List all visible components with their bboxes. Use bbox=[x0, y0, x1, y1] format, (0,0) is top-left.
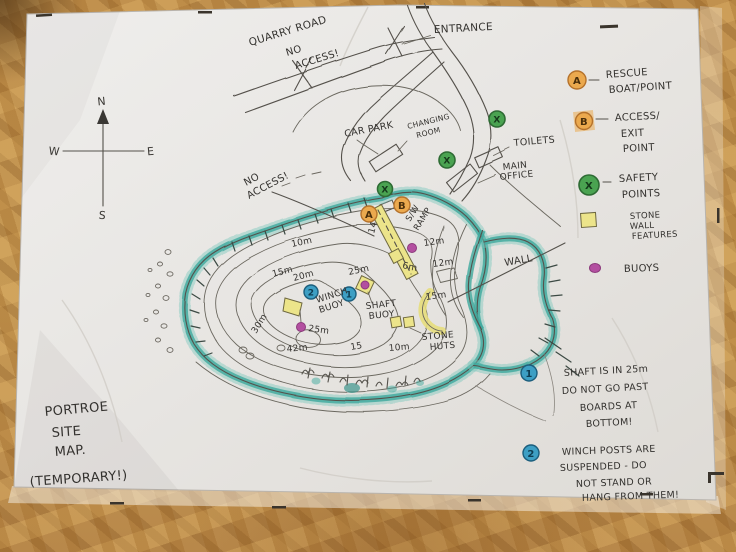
legend-safety-letter: X bbox=[585, 181, 593, 192]
legend-buoy-symbol bbox=[590, 264, 601, 273]
legend-access-line3: POINT bbox=[623, 142, 656, 155]
legend-access-letter: B bbox=[580, 117, 588, 128]
depth-10m-south: 10m bbox=[388, 342, 410, 354]
legend-rescue-letter: A bbox=[573, 76, 581, 87]
buoy-winch bbox=[297, 323, 306, 332]
buoy-ramp bbox=[408, 244, 417, 253]
safety-point-ramp-label: X bbox=[381, 186, 388, 196]
note-1-number: 1 bbox=[525, 369, 532, 380]
compass-n: N bbox=[97, 95, 107, 109]
note-marker-2-map-label: 2 bbox=[308, 289, 315, 299]
buoy-shaft bbox=[361, 281, 369, 289]
access-point-b-label: B bbox=[398, 201, 406, 212]
legend-buoys-label: BUOYS bbox=[624, 263, 660, 275]
legend-stonewall-symbol bbox=[581, 212, 597, 227]
safety-point-office-label: X bbox=[443, 157, 450, 167]
stone-hut-2 bbox=[403, 316, 414, 327]
title-line3: MAP. bbox=[54, 443, 86, 460]
note-2-number: 2 bbox=[527, 449, 534, 460]
legend-safety-line1: SAFETY bbox=[619, 172, 660, 185]
compass-w: W bbox=[48, 145, 60, 159]
site-map-photo: N W E S QUARRY ROAD NO ACCESS! ENTRANCE bbox=[0, 0, 736, 552]
rescue-point-a-label: A bbox=[365, 210, 373, 221]
compass-s: S bbox=[98, 209, 107, 223]
compass-e: E bbox=[147, 145, 155, 159]
safety-point-road-label: X bbox=[493, 116, 500, 126]
legend-safety-line2: POINTS bbox=[622, 188, 661, 201]
depth-15-south: 15 bbox=[350, 341, 364, 353]
title-line2: SITE bbox=[51, 424, 81, 441]
legend-access-line2: EXIT bbox=[621, 128, 646, 140]
